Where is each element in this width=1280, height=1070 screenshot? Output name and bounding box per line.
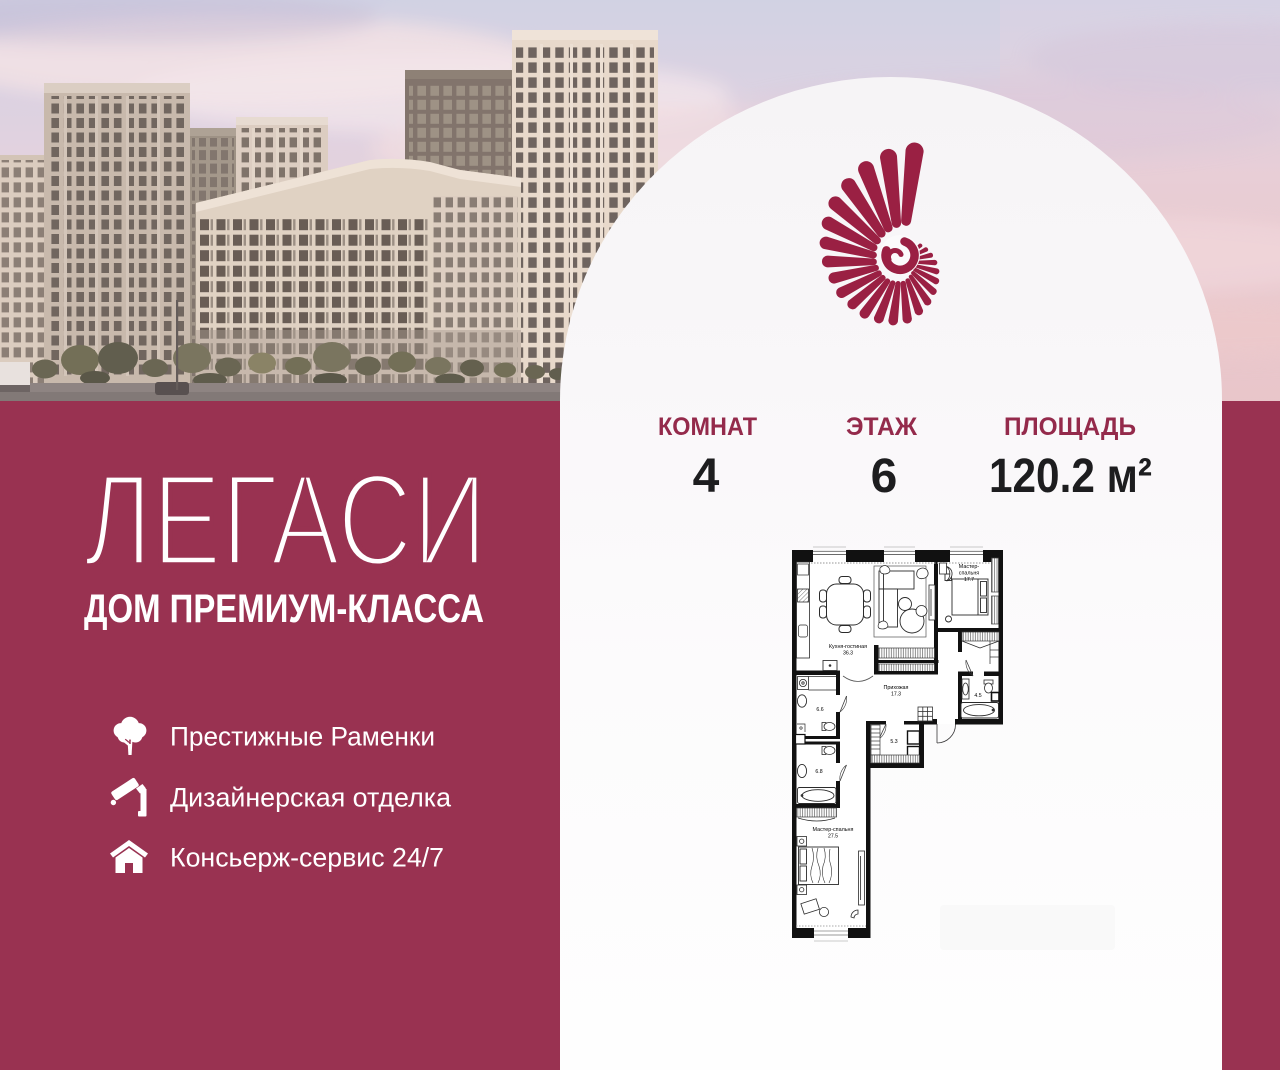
svg-text:ЛЕГАСИ: ЛЕГАСИ [84, 446, 487, 593]
svg-text:17.7: 17.7 [964, 577, 974, 583]
svg-text:36.3: 36.3 [843, 651, 853, 657]
svg-text:ЭТАЖ: ЭТАЖ [846, 414, 918, 441]
svg-text:Консьерж-сервис 24/7: Консьерж-сервис 24/7 [170, 843, 444, 873]
svg-text:4.5: 4.5 [974, 693, 981, 699]
svg-text:6.8: 6.8 [815, 769, 822, 775]
svg-text:6: 6 [871, 450, 898, 503]
svg-text:17.3: 17.3 [891, 692, 901, 698]
svg-text:Прихожая: Прихожая [884, 685, 909, 691]
svg-text:КОМНАТ: КОМНАТ [658, 414, 757, 441]
svg-text:Дизайнерская отделка: Дизайнерская отделка [170, 783, 452, 813]
svg-text:Мастер-спальня: Мастер-спальня [813, 827, 854, 833]
svg-text:ПЛОЩАДЬ: ПЛОЩАДЬ [1004, 414, 1136, 441]
svg-text:4: 4 [693, 450, 720, 503]
svg-text:ДОМ ПРЕМИУМ-КЛАССА: ДОМ ПРЕМИУМ-КЛАССА [84, 587, 484, 631]
svg-text:Кухня-гостиная: Кухня-гостиная [829, 644, 867, 650]
svg-text:5.3: 5.3 [890, 739, 897, 745]
svg-text:6.6: 6.6 [816, 707, 823, 713]
svg-text:120.2 м²: 120.2 м² [989, 450, 1152, 503]
svg-text:Престижные Раменки: Престижные Раменки [170, 722, 435, 752]
svg-text:спальня: спальня [959, 571, 980, 577]
svg-text:Мастер-: Мастер- [959, 564, 980, 570]
svg-text:27.5: 27.5 [828, 834, 838, 840]
